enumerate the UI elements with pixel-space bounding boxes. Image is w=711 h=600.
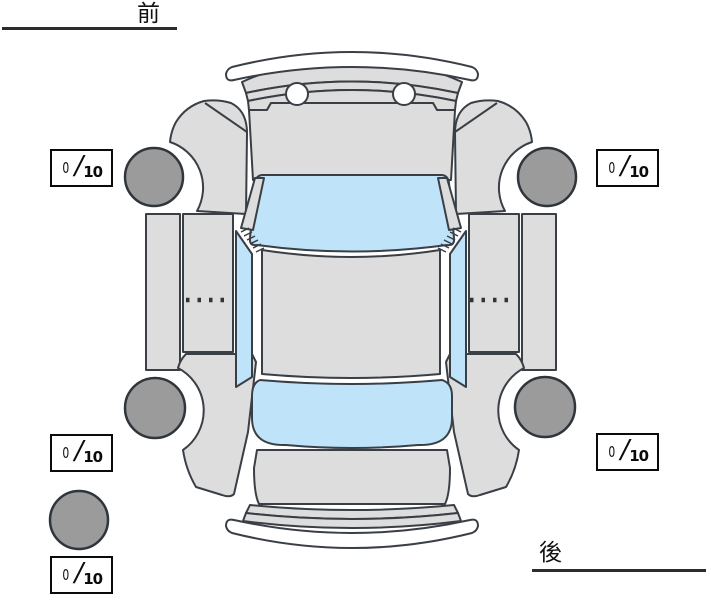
tread-score-max: 10 [629, 447, 648, 465]
left-headlight-icon [286, 83, 308, 105]
tread-score-value: 0 [62, 566, 69, 584]
tread-score-separator: / [620, 439, 629, 461]
tread-score-value: 0 [608, 159, 615, 177]
tread-score-separator: / [74, 440, 83, 462]
tread-score-value: 0 [62, 444, 69, 462]
front-right-fender-panel [455, 100, 532, 214]
tread-score-rear-left: 0/10 [50, 434, 113, 472]
trunk-panel [254, 450, 450, 504]
tread-score-spare: 0/10 [50, 556, 113, 594]
left-sill-panel [146, 214, 180, 370]
right-door-panel [469, 214, 519, 352]
tread-score-separator: / [620, 155, 629, 177]
spare-tire [50, 491, 108, 549]
tread-score-value: 0 [608, 443, 615, 461]
tread-score-front-right: 0/10 [596, 149, 659, 187]
left-side-window-glass [236, 231, 252, 387]
windshield-glass [250, 175, 454, 252]
front-left-tire [125, 148, 183, 206]
right-side-window-glass [450, 231, 466, 387]
front-right-tire [518, 148, 576, 206]
tread-score-max: 10 [83, 163, 102, 181]
tread-score-front-left: 0/10 [50, 149, 113, 187]
rear-left-tire [125, 378, 185, 438]
front-left-fender-panel [170, 100, 247, 214]
tread-score-value: 0 [62, 159, 69, 177]
right-sill-panel [522, 214, 556, 370]
hood-panel [249, 103, 455, 180]
tread-score-rear-right: 0/10 [596, 433, 659, 471]
vehicle-inspection-diagram: 前 後 [0, 0, 711, 600]
rear-window-glass [252, 380, 452, 448]
left-door-panel [183, 214, 233, 352]
right-headlight-icon [393, 83, 415, 105]
tread-score-max: 10 [629, 163, 648, 181]
tread-score-max: 10 [83, 448, 102, 466]
car-diagram [0, 0, 711, 600]
roof-panel [262, 250, 440, 378]
tread-score-separator: / [74, 155, 83, 177]
rear-right-tire [515, 377, 575, 437]
tread-score-separator: / [74, 562, 83, 584]
tread-score-max: 10 [83, 570, 102, 588]
